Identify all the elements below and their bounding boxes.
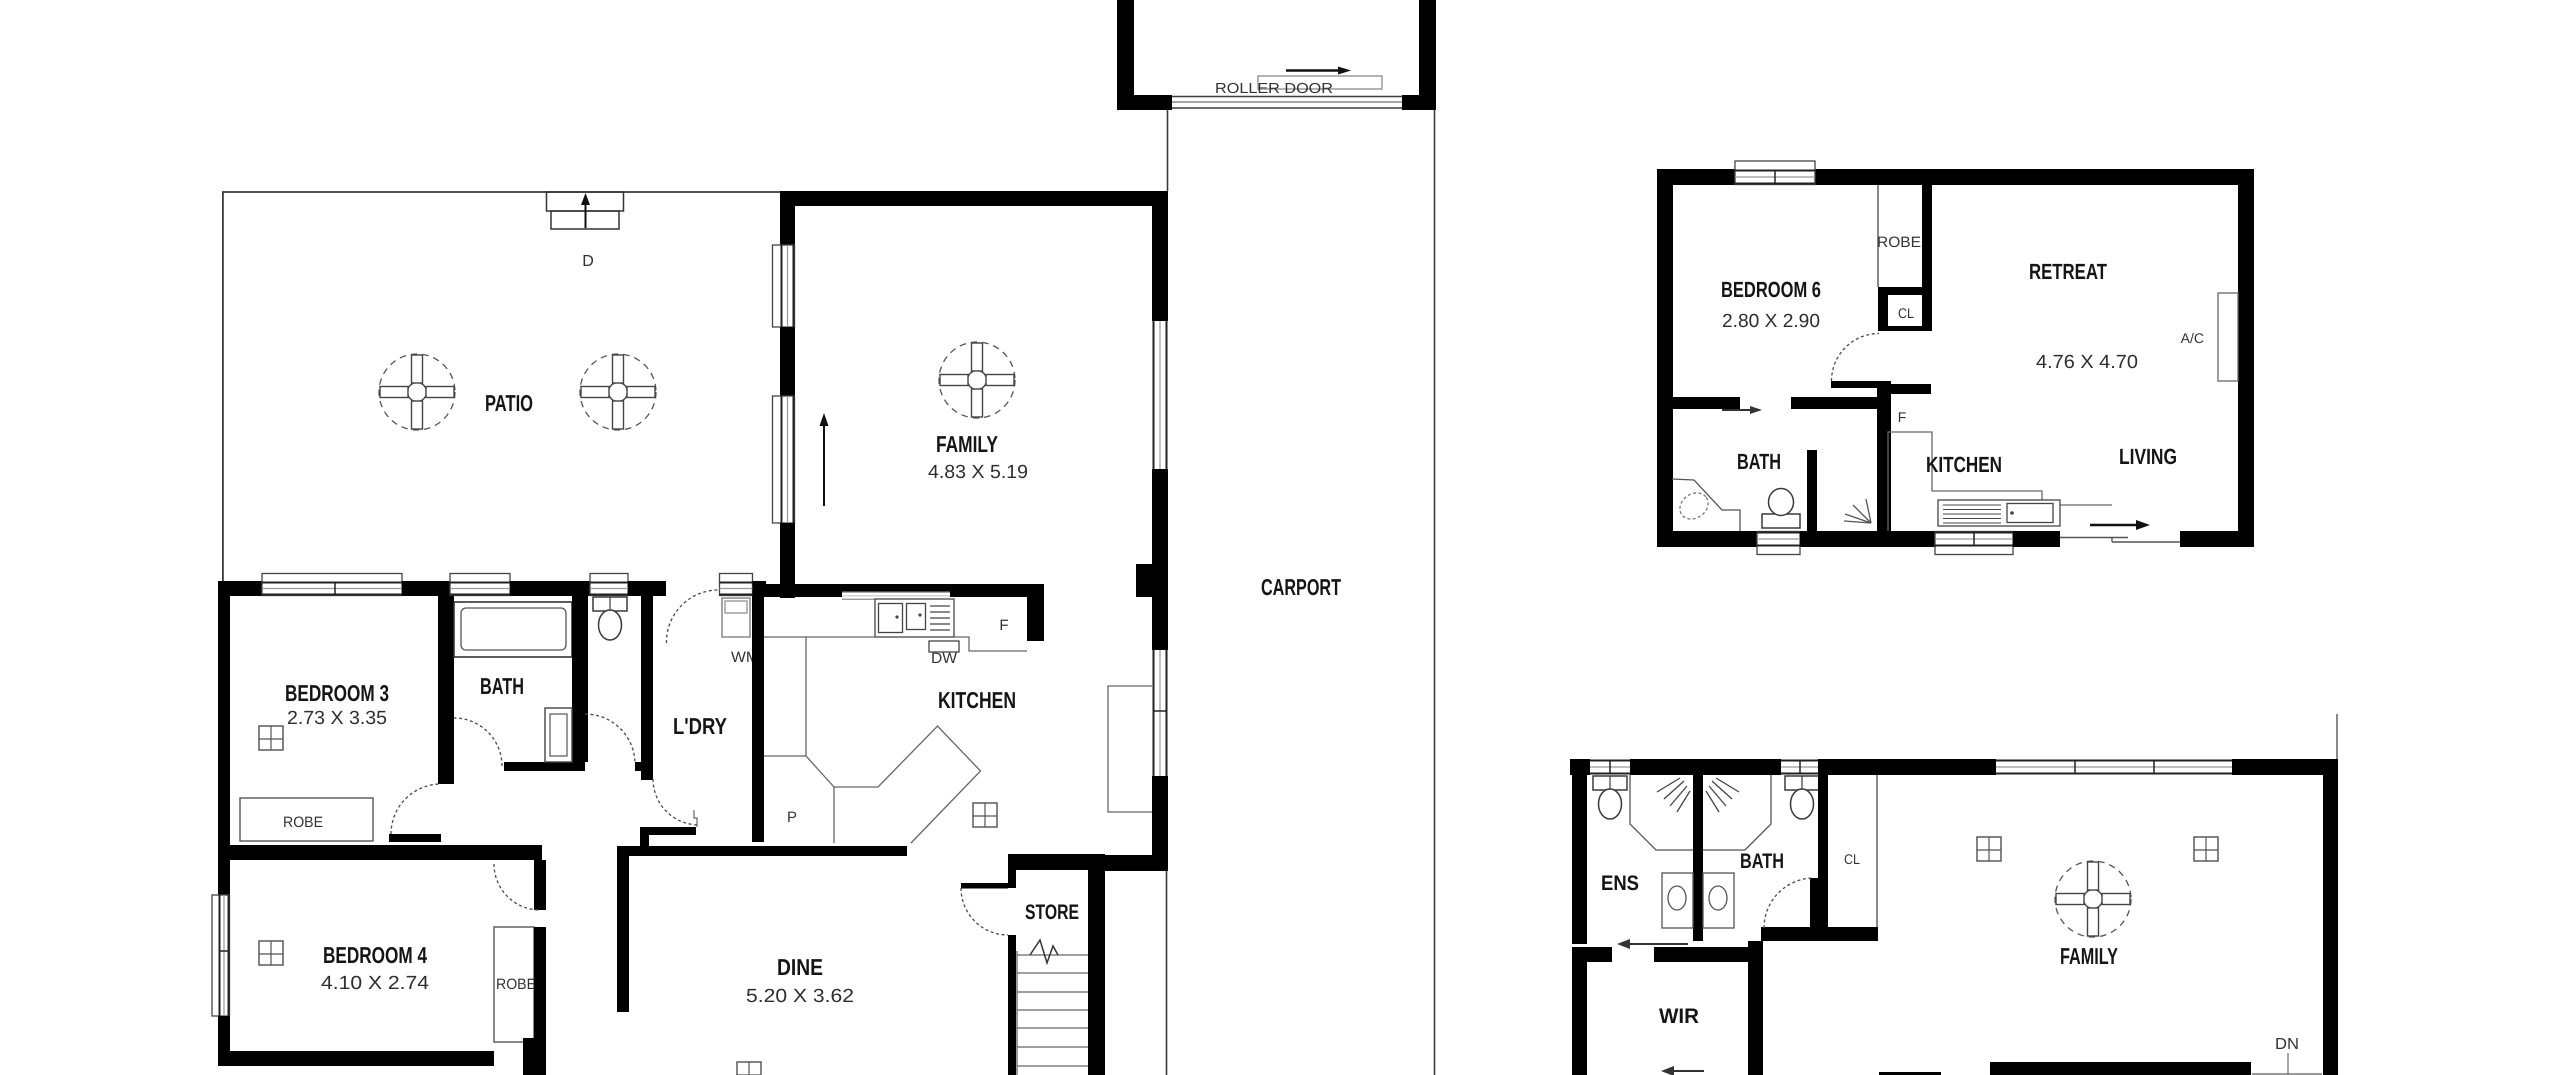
- svg-text:LIVING: LIVING: [2119, 444, 2177, 469]
- svg-text:ENS: ENS: [1601, 872, 1639, 895]
- svg-text:L'DRY: L'DRY: [673, 713, 727, 739]
- svg-text:BATH: BATH: [480, 673, 524, 699]
- svg-text:CL: CL: [1898, 305, 1914, 321]
- svg-text:FAMILY: FAMILY: [2060, 943, 2118, 969]
- svg-text:RETREAT: RETREAT: [2029, 259, 2107, 284]
- svg-text:2.80 X 2.90: 2.80 X 2.90: [1722, 311, 1820, 332]
- svg-text:BATH: BATH: [1737, 449, 1781, 474]
- svg-text:5.20 X 3.62: 5.20 X 3.62: [746, 986, 854, 1007]
- svg-text:FAMILY: FAMILY: [936, 431, 998, 457]
- svg-text:2.73 X 3.35: 2.73 X 3.35: [287, 708, 387, 729]
- svg-text:ROBE: ROBE: [496, 976, 536, 993]
- svg-text:ROBE: ROBE: [283, 814, 323, 831]
- svg-text:KITCHEN: KITCHEN: [938, 687, 1016, 713]
- svg-text:DINE: DINE: [777, 954, 823, 980]
- svg-text:CARPORT: CARPORT: [1261, 574, 1341, 600]
- svg-text:DN: DN: [2275, 1036, 2299, 1053]
- svg-text:DW: DW: [931, 650, 958, 667]
- svg-text:4.76 X 4.70: 4.76 X 4.70: [2036, 352, 2138, 373]
- svg-text:BEDROOM 3: BEDROOM 3: [285, 680, 389, 706]
- svg-text:BATH: BATH: [1740, 850, 1784, 873]
- svg-text:D: D: [582, 253, 594, 270]
- svg-text:WIR: WIR: [1659, 1005, 1699, 1028]
- svg-text:STORE: STORE: [1025, 901, 1079, 924]
- svg-text:BEDROOM 6: BEDROOM 6: [1721, 277, 1821, 302]
- svg-text:KITCHEN: KITCHEN: [1926, 452, 2002, 477]
- svg-text:BEDROOM 4: BEDROOM 4: [323, 942, 427, 968]
- svg-text:F: F: [1898, 409, 1907, 425]
- svg-text:4.10 X 2.74: 4.10 X 2.74: [321, 973, 429, 994]
- svg-text:F: F: [999, 617, 1008, 634]
- svg-text:CL: CL: [1844, 851, 1860, 867]
- svg-text:ROBE: ROBE: [1877, 234, 1921, 251]
- svg-text:A/C: A/C: [2181, 330, 2204, 346]
- svg-text:PATIO: PATIO: [485, 390, 533, 416]
- svg-text:ROLLER DOOR: ROLLER DOOR: [1215, 81, 1333, 97]
- svg-text:P: P: [787, 809, 797, 826]
- svg-text:4.83 X 5.19: 4.83 X 5.19: [928, 462, 1028, 483]
